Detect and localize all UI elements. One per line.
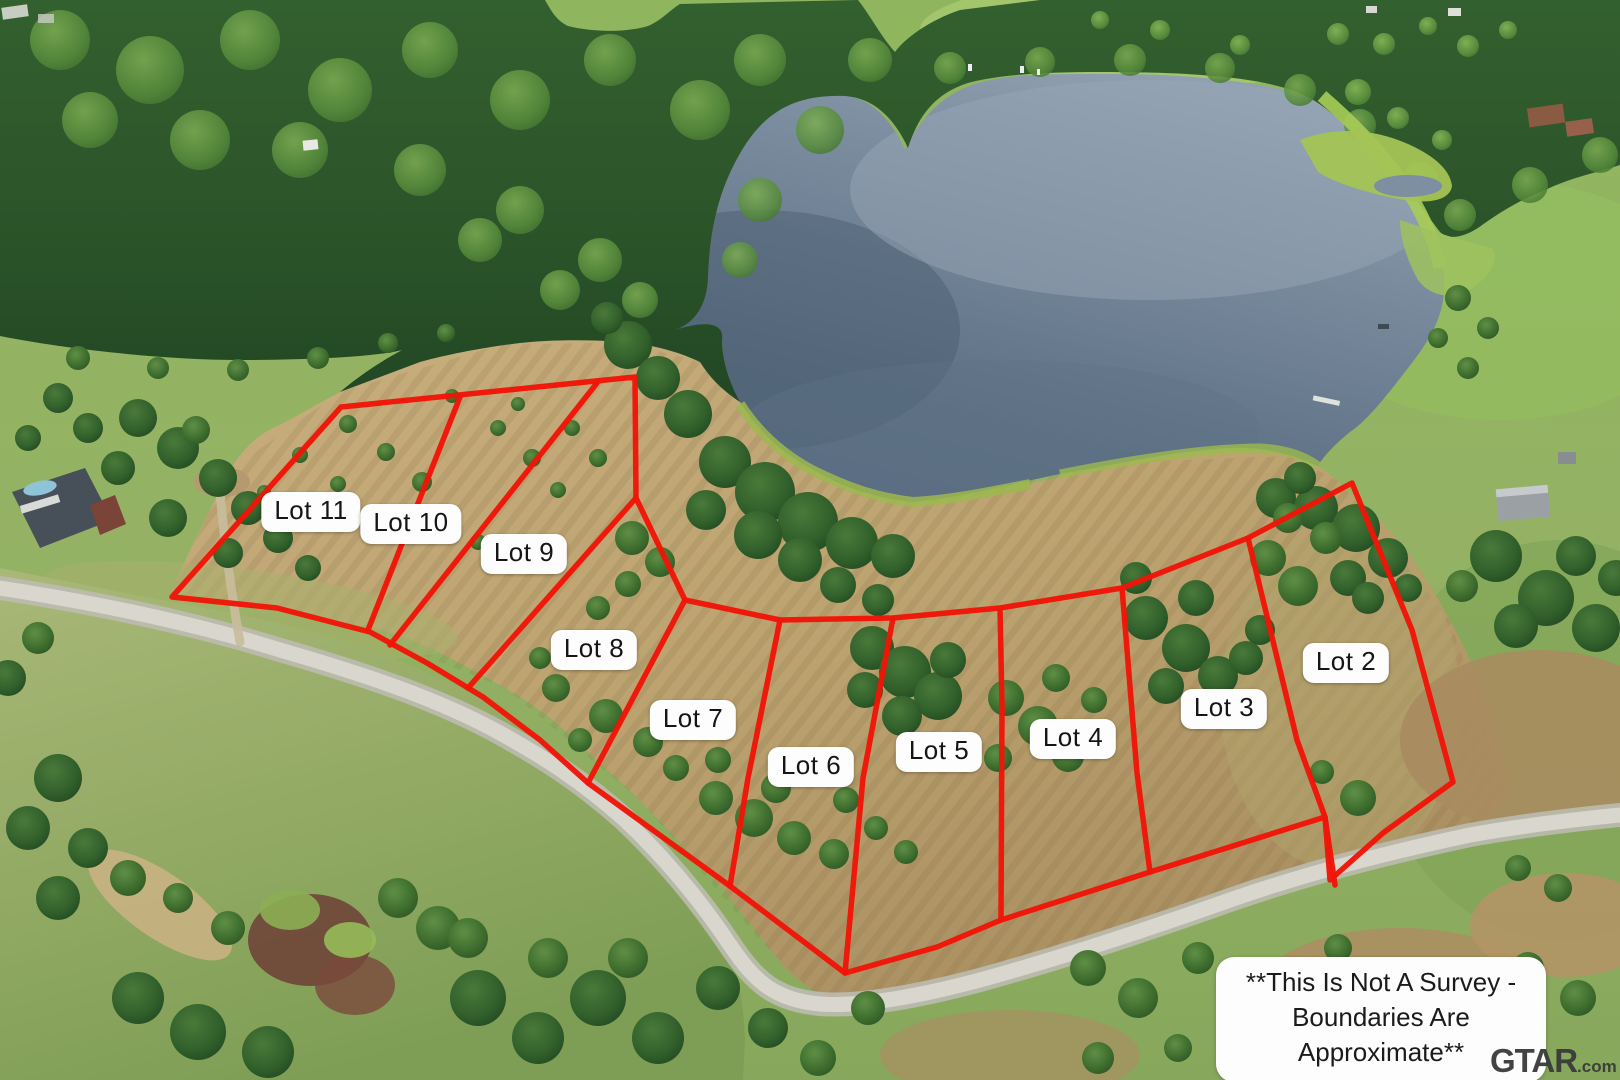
watermark: GTAR.com [1490, 1042, 1617, 1080]
small-dock [1378, 324, 1389, 329]
aerial-lot-map: Lot 11Lot 10Lot 9Lot 8Lot 7Lot 6Lot 5Lot… [0, 0, 1620, 1080]
boat [968, 64, 972, 71]
divider-lot-5-lot-4 [1000, 608, 1002, 920]
watermark-brand: GTAR [1490, 1042, 1577, 1079]
disclaimer-line-2: Boundaries Are Approximate** [1292, 1002, 1470, 1067]
watermark-suffix: .com [1577, 1057, 1617, 1076]
boat [1037, 69, 1040, 75]
aerial-photo [0, 0, 1620, 1080]
boat [1020, 66, 1024, 73]
disclaimer-line-1: **This Is Not A Survey - [1246, 967, 1516, 997]
white-house [303, 139, 319, 151]
